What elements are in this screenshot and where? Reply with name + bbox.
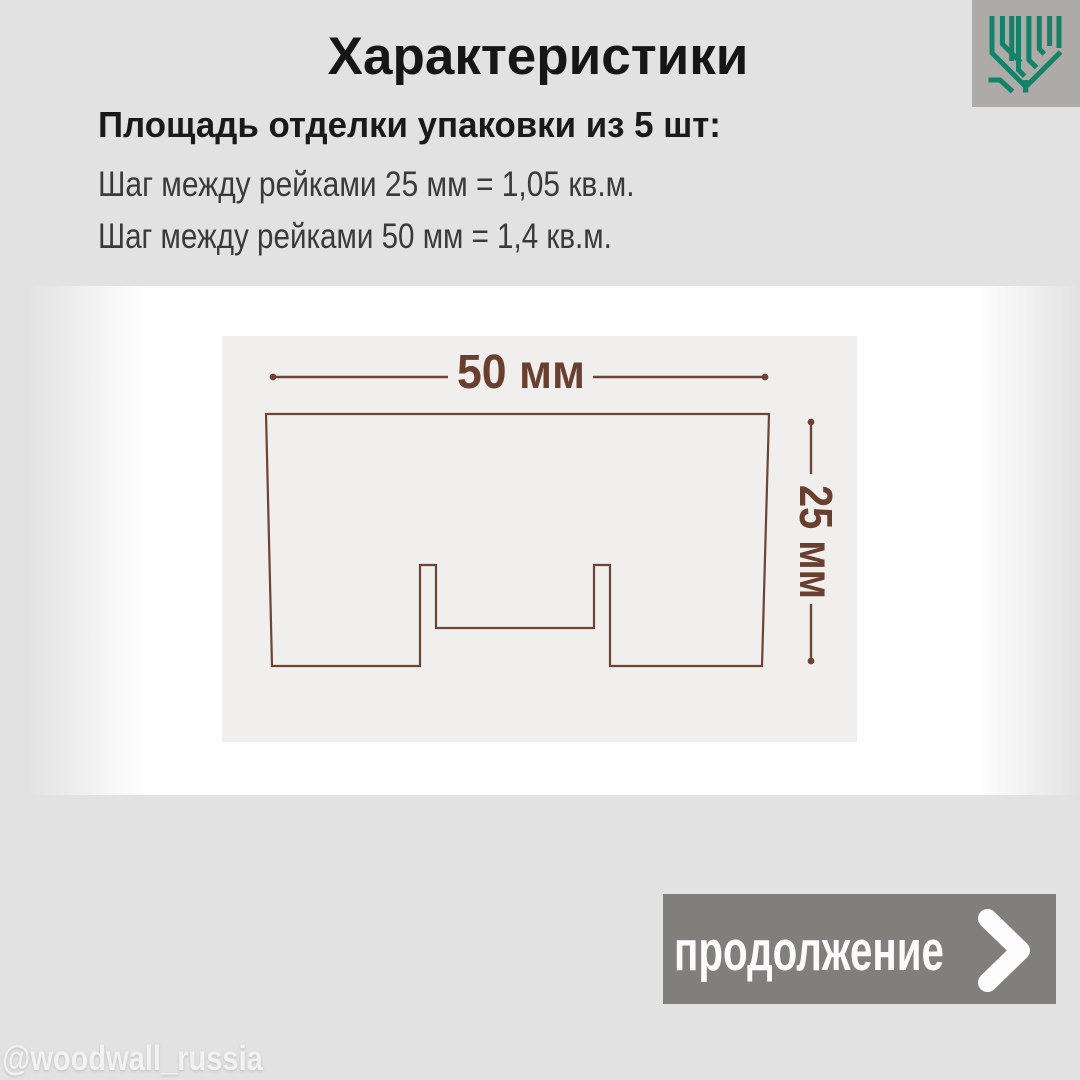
svg-text:25 мм: 25 мм (790, 485, 842, 599)
svg-text:50 мм: 50 мм (457, 346, 585, 399)
